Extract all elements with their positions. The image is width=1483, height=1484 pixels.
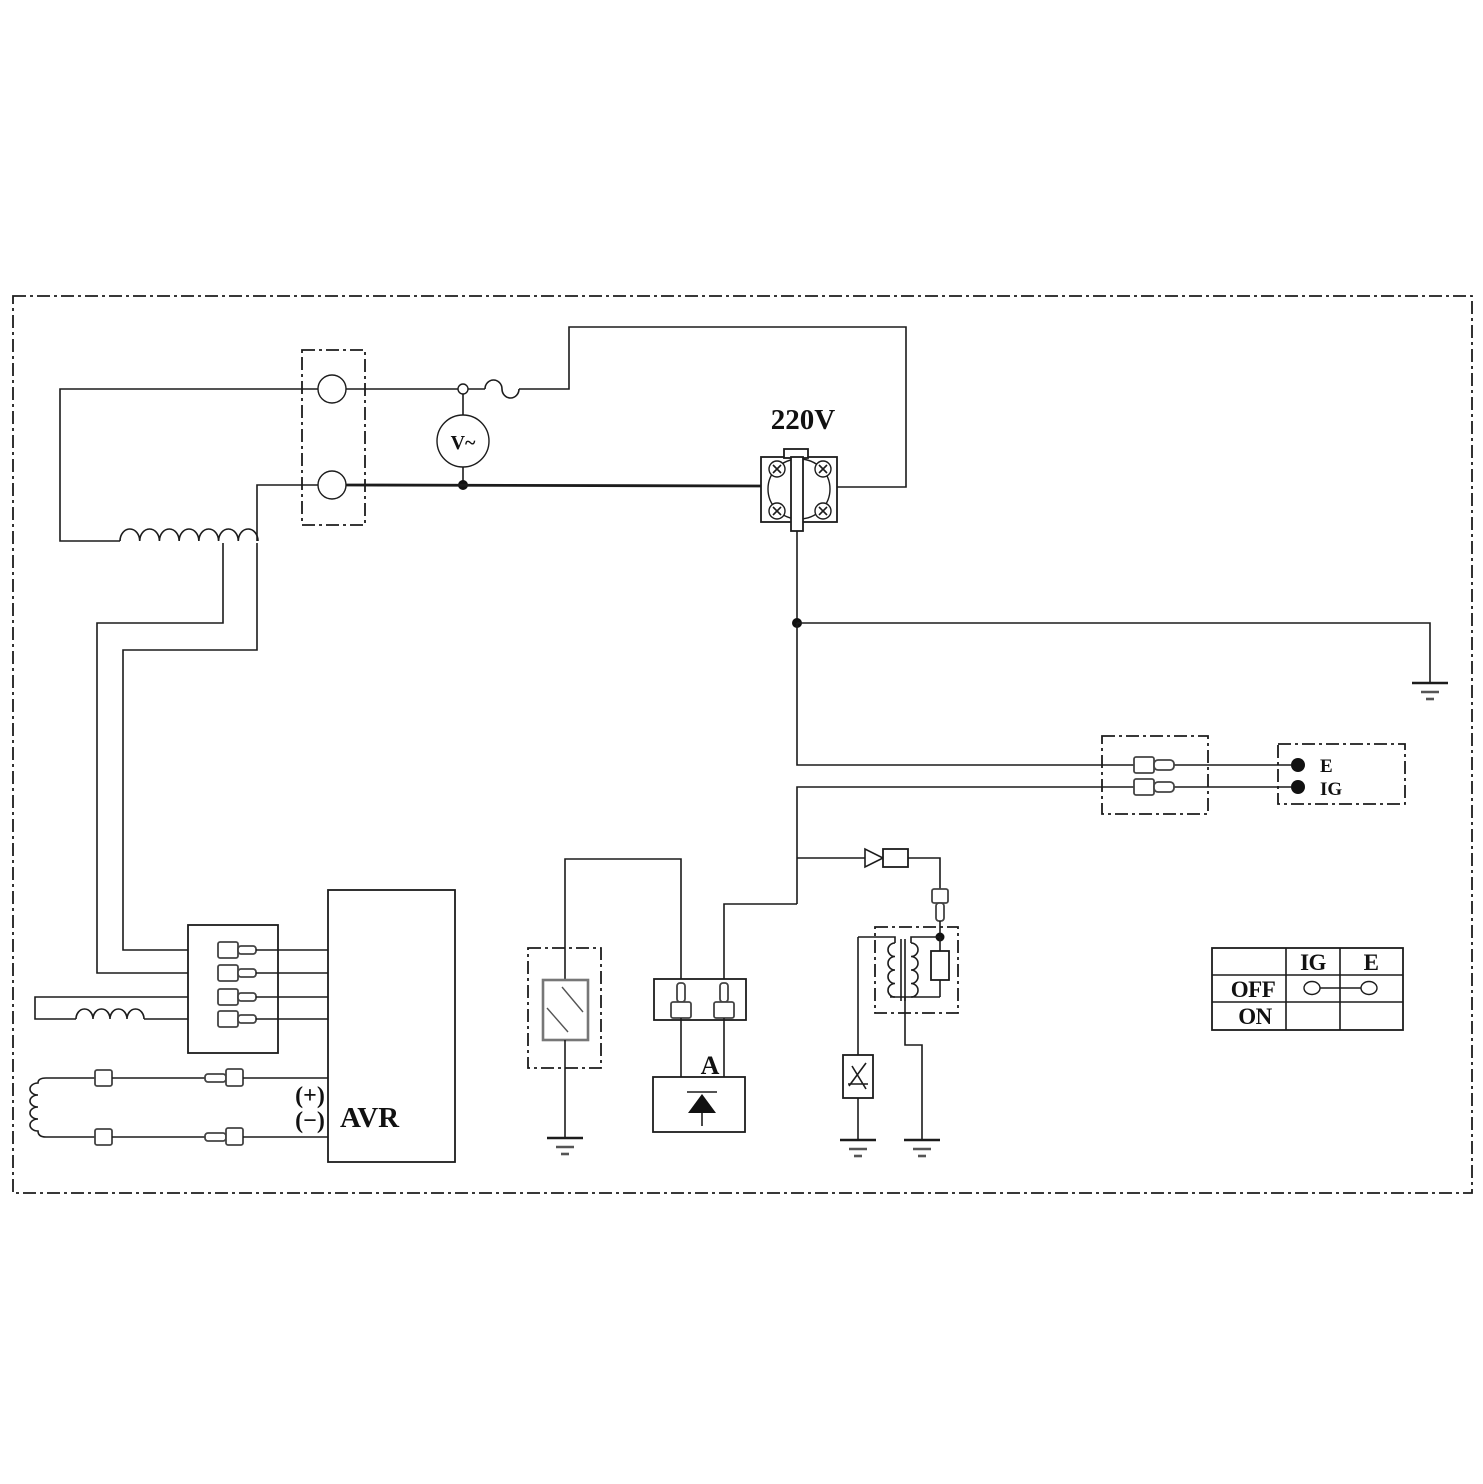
- avr-label: AVR: [340, 1102, 400, 1134]
- primary-winding: [888, 943, 895, 997]
- spark-plug: [840, 937, 876, 1156]
- stator-tap-wire: [97, 543, 223, 973]
- bullet-terminal: [932, 889, 948, 921]
- junction-open: [458, 384, 468, 394]
- ground-icon: [547, 1138, 583, 1154]
- voltmeter-label: V~: [451, 432, 476, 454]
- unit-label: A: [701, 1051, 720, 1080]
- terminal-top: [318, 375, 346, 403]
- ignition-control-unit: A: [653, 1051, 745, 1132]
- e-wire: [797, 623, 1291, 765]
- table-header-ig: IG: [1300, 950, 1326, 975]
- breaker-icon: [485, 380, 519, 398]
- stator-lead-bottom: [257, 485, 318, 541]
- output-terminal-block: [302, 350, 365, 525]
- avr-minus-label: (−): [295, 1108, 325, 1134]
- voltmeter: V~: [437, 394, 489, 490]
- stator-winding: [60, 389, 318, 973]
- terminal-ig-label: IG: [1320, 779, 1342, 800]
- ig-wire: [797, 787, 1291, 904]
- ignition-coil: [858, 927, 958, 1156]
- core: [901, 939, 905, 1001]
- wire-to-socket-right: [519, 327, 906, 487]
- neutral-bus: [346, 485, 761, 486]
- wire: [858, 937, 895, 943]
- table-row-on: ON: [1238, 1004, 1272, 1029]
- wire-to-control-unit: [724, 904, 797, 983]
- ground-rail: [792, 618, 1448, 699]
- sensor-wire: [565, 859, 681, 983]
- ground-icon: [840, 1140, 876, 1156]
- stop-switch-connector: [1102, 736, 1208, 814]
- wiring-diagram: V~ 220V: [0, 0, 1483, 1484]
- ground-icon: [1412, 683, 1448, 699]
- terminal-e-label: E: [1320, 756, 1333, 777]
- field-coil: [30, 1078, 46, 1137]
- connector-outline: [1102, 736, 1208, 814]
- bullet-terminal: [1134, 779, 1174, 795]
- sub-winding-coil: [76, 1009, 144, 1019]
- outlet-voltage-label: 220V: [771, 404, 836, 436]
- ground-icon: [904, 1140, 940, 1156]
- wire-to-ground: [905, 997, 922, 1140]
- secondary-winding: [911, 943, 918, 997]
- stator-coil: [120, 529, 258, 541]
- outlet-220v: 220V: [761, 404, 837, 623]
- wire: [908, 858, 940, 889]
- diode-icon: [865, 849, 883, 867]
- schematic-page: V~ 220V: [0, 0, 1483, 1484]
- ignition-branch: [724, 849, 948, 983]
- field-winding: [30, 1069, 328, 1145]
- resistor-icon: [883, 849, 908, 867]
- bullet-terminal: [1134, 757, 1174, 773]
- stop-switch-wiring: [797, 623, 1291, 904]
- splice-connector: [95, 1129, 112, 1145]
- table-header-e: E: [1364, 950, 1379, 975]
- diagram-border: [13, 296, 1472, 1193]
- terminal-e-dot: [1291, 758, 1305, 772]
- avr-plus-label: (+): [295, 1083, 325, 1109]
- splice-connector: [95, 1070, 112, 1086]
- table-row-off: OFF: [1231, 977, 1276, 1002]
- terminal-bottom: [318, 471, 346, 499]
- socket-key-bar: [791, 457, 803, 531]
- avr-unit: AVR (+) (−): [295, 890, 455, 1162]
- wire-to-chassis: [797, 623, 1430, 683]
- switch-position-table: IG E OFF ON: [1212, 948, 1403, 1030]
- terminal-ig-dot: [1291, 780, 1305, 794]
- resistor-icon: [931, 951, 949, 980]
- stator-lead-top: [60, 389, 318, 541]
- stator-sense-wire: [123, 543, 257, 950]
- engine-stop-switch: E IG: [1278, 744, 1405, 804]
- bullet-terminal: [205, 1069, 243, 1086]
- avr-connector: [188, 925, 328, 1053]
- bullet-terminal: [205, 1128, 243, 1145]
